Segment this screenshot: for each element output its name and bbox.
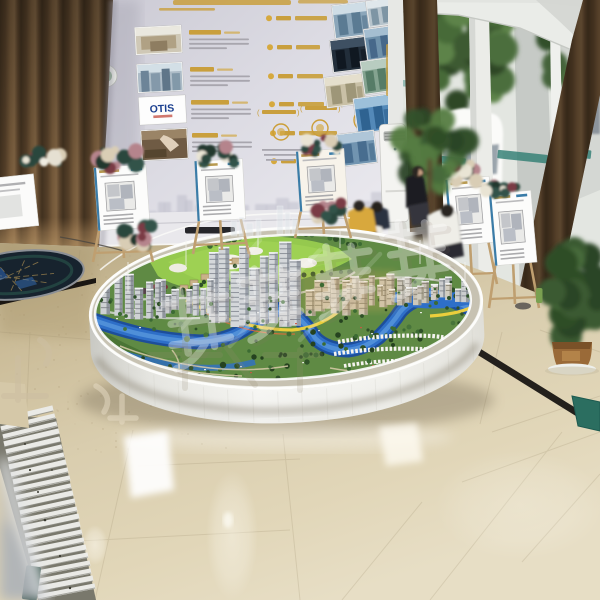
- svg-text:OTIS: OTIS: [149, 102, 174, 115]
